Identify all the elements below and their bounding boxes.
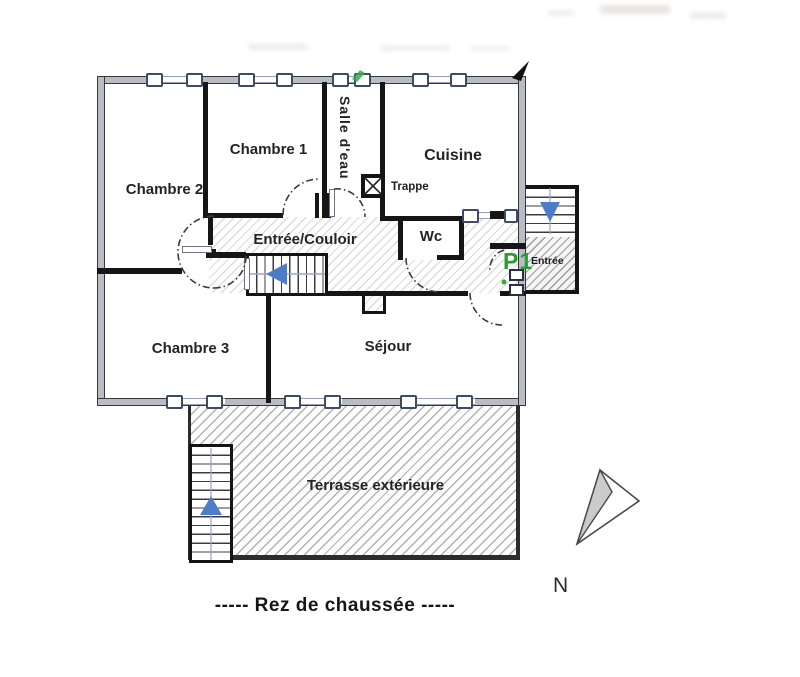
door-swing-arc	[283, 179, 319, 215]
wall-segment	[97, 268, 182, 274]
window-symbol	[450, 73, 467, 87]
room-label-entree-couloir: Entrée/Couloir	[225, 231, 385, 248]
window-symbol	[206, 395, 223, 409]
terrace-stair	[189, 444, 233, 563]
window-symbol	[324, 395, 341, 409]
room-label-wc: Wc	[408, 228, 454, 245]
room-label-chambre1: Chambre 1	[216, 141, 321, 158]
trappe-label: Trappe	[391, 181, 429, 193]
wall-wc-bottom	[437, 255, 464, 260]
room-label-terrasse: Terrasse extérieure	[248, 477, 503, 494]
window-symbol	[284, 395, 301, 409]
entree-annotation-label: Entrée	[531, 255, 564, 267]
window-symbol	[462, 209, 479, 223]
wall-segment	[208, 213, 213, 245]
trappe-symbol	[361, 174, 385, 198]
north-arrow-icon	[577, 470, 639, 544]
room-label-sejour: Séjour	[338, 338, 438, 355]
window-symbol	[332, 73, 349, 87]
door-jamb	[315, 193, 319, 218]
interior-staircase	[246, 253, 328, 296]
wall-segment	[380, 216, 400, 221]
north-letter: N	[553, 574, 568, 598]
wall-wc-top	[398, 216, 464, 221]
scan-artifact	[600, 5, 670, 14]
wall-segment	[322, 82, 327, 218]
wall-segment	[214, 252, 246, 258]
door-swing-arc	[470, 293, 502, 325]
room-label-cuisine: Cuisine	[398, 147, 508, 165]
parking-p1-label: P1	[503, 248, 533, 275]
floor-caption: ----- Rez de chaussée -----	[140, 595, 530, 617]
window-symbol	[354, 73, 371, 87]
wall-segment	[328, 291, 468, 296]
window-symbol	[456, 395, 473, 409]
window-symbol	[276, 73, 293, 87]
scan-artifact	[548, 10, 574, 16]
room-label-chambre3: Chambre 3	[138, 340, 243, 357]
window-symbol	[400, 395, 417, 409]
room-label-salle-eau: Salle d'eau	[337, 96, 353, 214]
wall-segment	[490, 211, 505, 219]
door-leaf	[329, 189, 335, 217]
scan-artifact	[380, 45, 450, 51]
door-leaf	[182, 246, 212, 253]
door-leaf	[244, 258, 250, 290]
window-symbol	[146, 73, 163, 87]
wall-exterior-left	[97, 76, 105, 406]
scan-artifact	[470, 46, 510, 51]
window-symbol	[238, 73, 255, 87]
window-symbol	[186, 73, 203, 87]
floor-plan-canvas: Chambre 2 Chambre 1 Salle d'eau Cuisine …	[0, 0, 800, 677]
scan-artifact	[690, 12, 726, 19]
wall-segment	[380, 82, 385, 221]
exterior-stair-right	[522, 185, 579, 237]
entry-door-symbol	[509, 284, 524, 296]
wall-segment	[266, 293, 271, 403]
wall-wc-left	[398, 216, 403, 260]
scan-artifact	[248, 44, 308, 50]
window-symbol	[504, 209, 518, 223]
wall-exterior-right	[518, 76, 526, 406]
window-symbol	[412, 73, 429, 87]
wall-segment	[203, 213, 283, 218]
room-label-chambre2: Chambre 2	[112, 181, 217, 198]
chimney-block	[362, 293, 386, 314]
window-symbol	[166, 395, 183, 409]
